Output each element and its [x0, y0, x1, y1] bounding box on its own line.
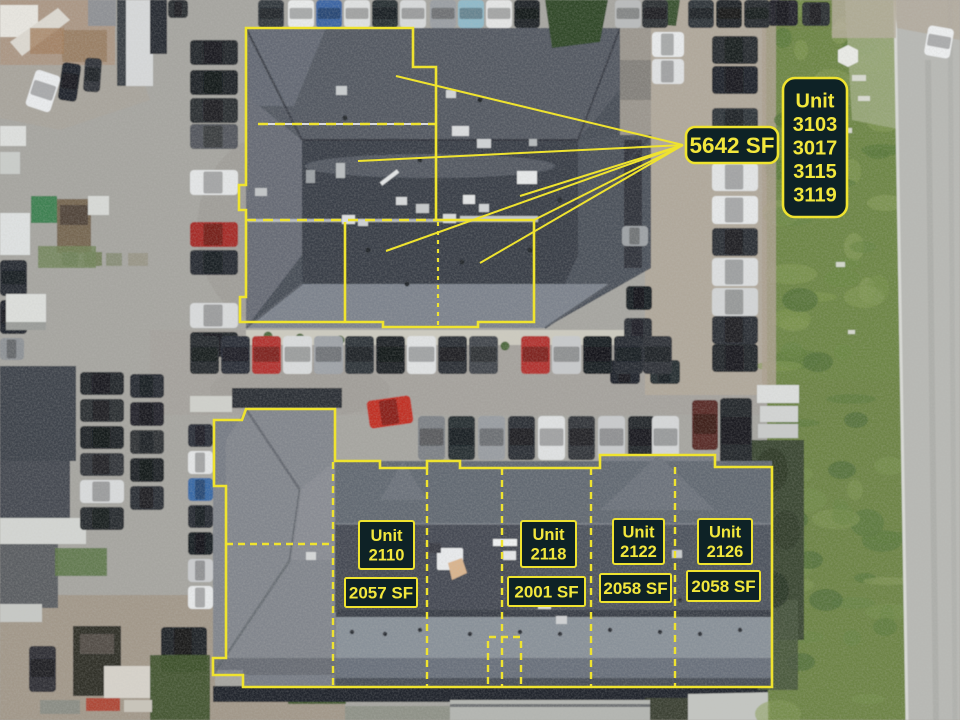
- svg-text:Unit: Unit: [796, 91, 835, 113]
- svg-text:Unit: Unit: [370, 527, 403, 545]
- svg-text:2122: 2122: [620, 543, 657, 561]
- svg-text:2118: 2118: [531, 546, 567, 564]
- svg-text:2058 SF: 2058 SF: [691, 577, 755, 596]
- svg-text:Unit: Unit: [532, 526, 565, 544]
- svg-text:3103: 3103: [793, 114, 838, 136]
- svg-text:2058 SF: 2058 SF: [603, 579, 667, 598]
- svg-text:Unit: Unit: [709, 524, 742, 542]
- svg-text:2001 SF: 2001 SF: [514, 582, 578, 601]
- svg-text:2126: 2126: [707, 543, 744, 561]
- svg-text:3119: 3119: [793, 185, 836, 207]
- svg-text:Unit: Unit: [622, 524, 655, 542]
- svg-text:2110: 2110: [369, 547, 405, 565]
- svg-text:5642 SF: 5642 SF: [689, 133, 774, 158]
- svg-text:3115: 3115: [793, 161, 836, 183]
- svg-text:2057 SF: 2057 SF: [349, 583, 413, 602]
- svg-text:3017: 3017: [793, 138, 838, 160]
